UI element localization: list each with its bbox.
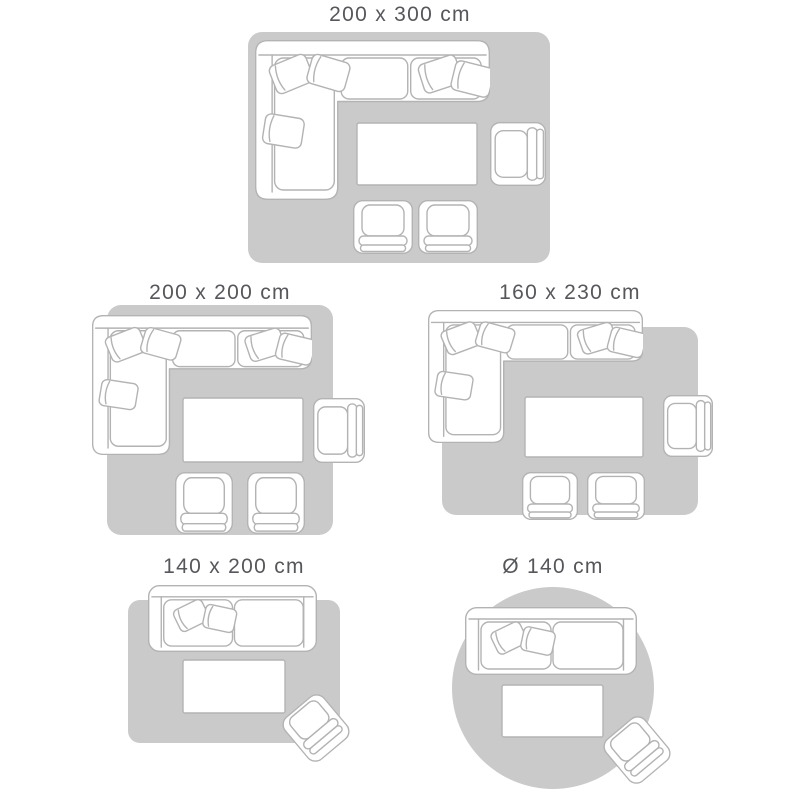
rug-layout-round-140 (420, 575, 740, 800)
two-seat-sofa-icon (466, 608, 637, 675)
rug-size-label-200x300: 200 x 300 cm (240, 2, 560, 28)
side-armchair-icon (314, 399, 365, 463)
side-armchair-icon (491, 123, 546, 186)
coffee-table-icon (357, 123, 477, 185)
coffee-table-icon (502, 685, 603, 737)
front-armchair-icon (176, 473, 233, 533)
rug-layout-160x230 (400, 300, 730, 545)
two-seat-sofa-icon (149, 586, 317, 652)
rug-layout-140x200 (80, 575, 400, 800)
front-armchair-icon (419, 201, 478, 254)
coffee-table-icon (183, 398, 303, 462)
front-armchair-icon (248, 473, 305, 533)
coffee-table-icon (183, 660, 285, 713)
front-armchair-icon (588, 473, 645, 520)
coffee-table-icon (525, 397, 643, 457)
side-armchair-icon (664, 396, 713, 457)
rug-size-guide: 200 x 300 cm 200 x 200 cm 160 x 230 cm 1… (0, 0, 800, 800)
front-armchair-icon (354, 201, 413, 254)
front-armchair-icon (523, 473, 578, 520)
rug-layout-200x200 (60, 300, 380, 545)
rug-layout-200x300 (240, 28, 560, 268)
